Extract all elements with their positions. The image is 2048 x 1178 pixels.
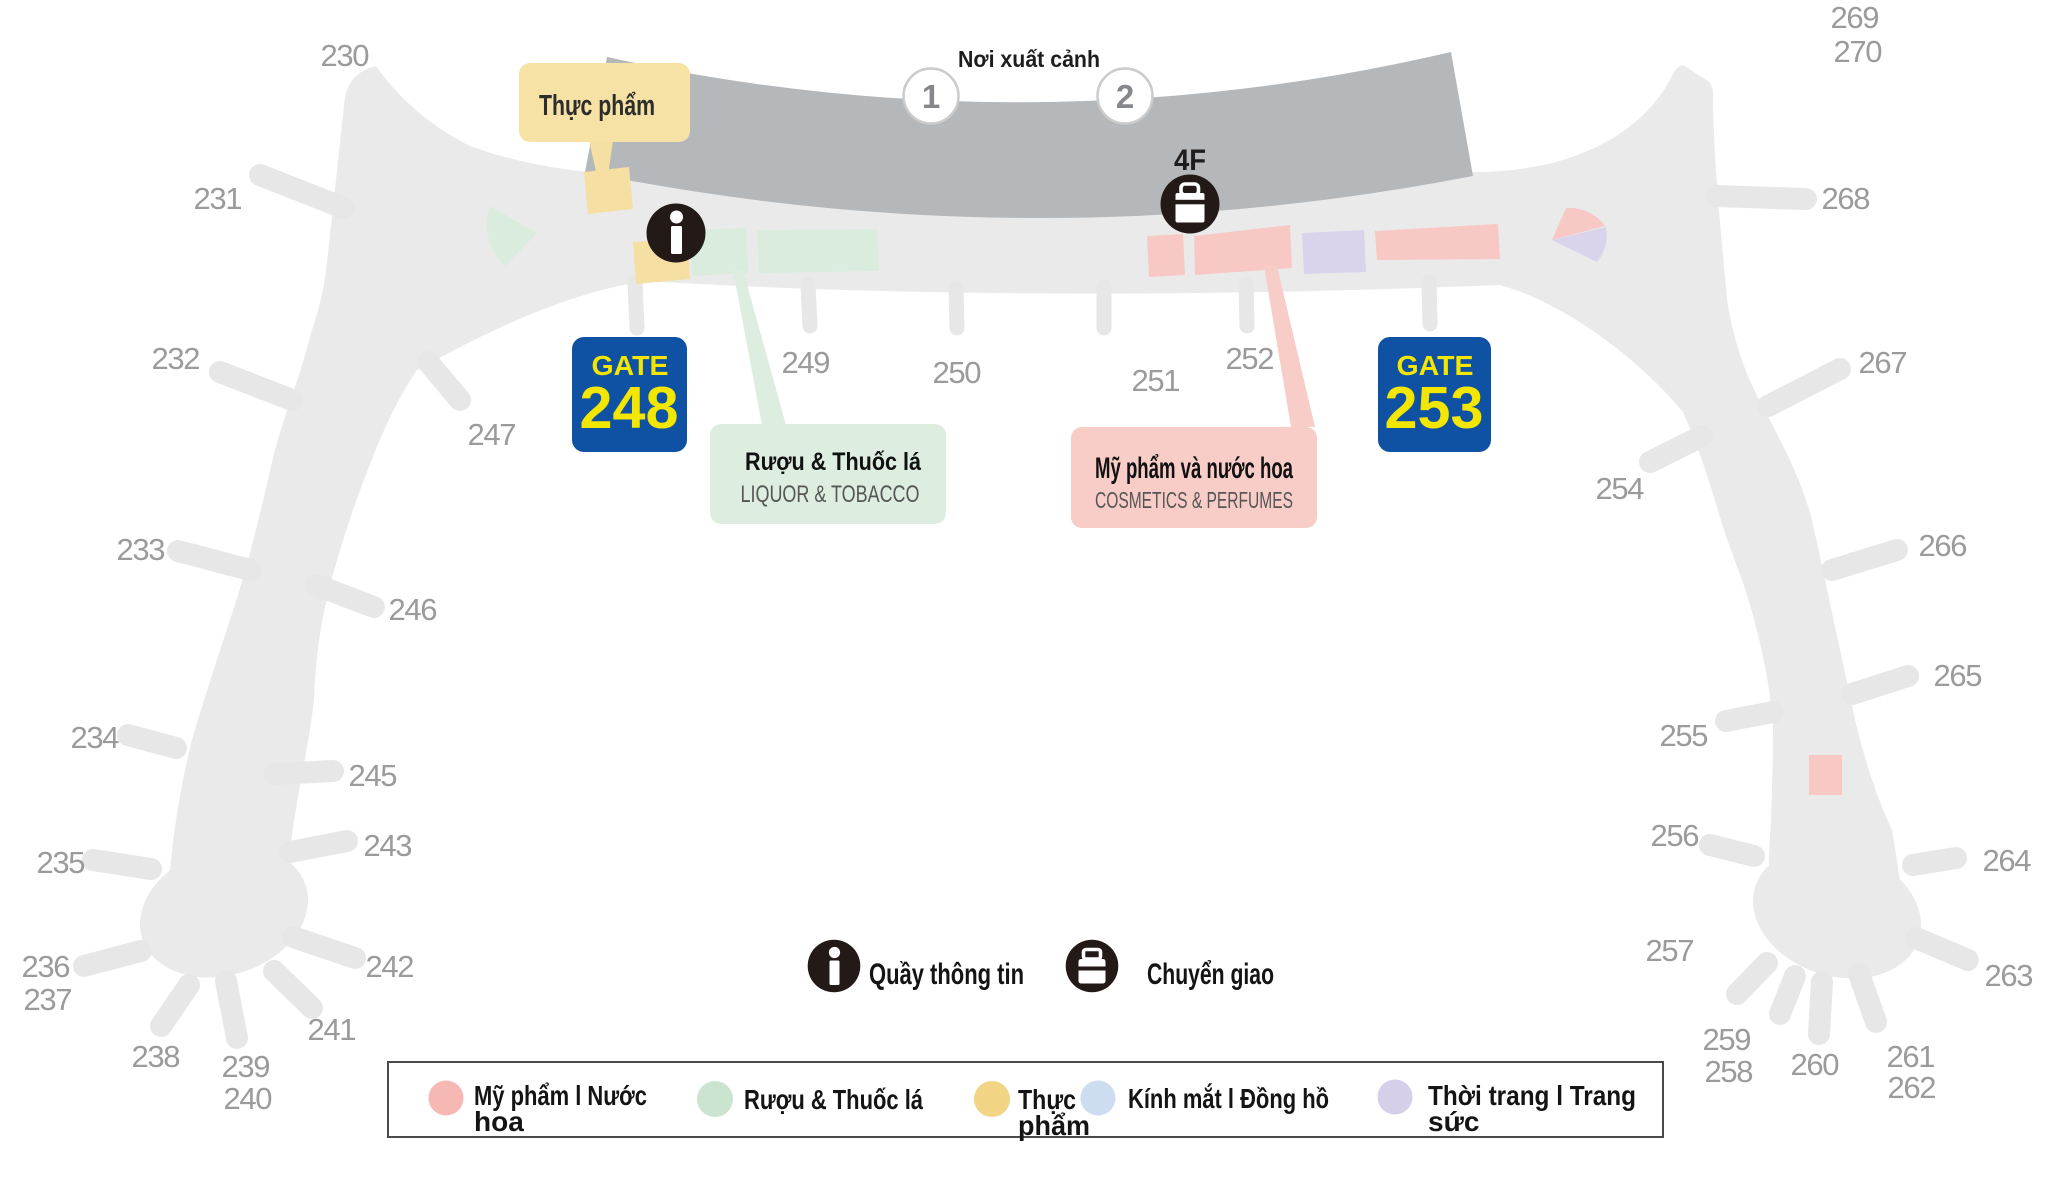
svg-text:236: 236 (22, 949, 71, 984)
svg-text:265: 265 (1934, 658, 1983, 693)
svg-text:230: 230 (321, 38, 370, 73)
svg-text:234: 234 (71, 720, 120, 755)
svg-text:hoa: hoa (474, 1106, 524, 1137)
svg-text:241: 241 (308, 1012, 357, 1047)
svg-text:Kính mắt l Đồng hồ: Kính mắt l Đồng hồ (1128, 1083, 1329, 1114)
svg-text:251: 251 (1132, 363, 1181, 398)
svg-text:264: 264 (1983, 843, 2032, 878)
svg-text:237: 237 (24, 982, 73, 1017)
svg-text:235: 235 (37, 845, 86, 880)
svg-text:Mỹ phẩm và nước hoa: Mỹ phẩm và nước hoa (1095, 452, 1293, 485)
svg-text:269: 269 (1831, 0, 1880, 35)
svg-text:Nơi xuất cảnh: Nơi xuất cảnh (958, 46, 1100, 72)
svg-text:263: 263 (1985, 958, 2034, 993)
svg-text:250: 250 (933, 355, 982, 390)
svg-text:Thực phẩm: Thực phẩm (539, 90, 655, 122)
svg-text:LIQUOR & TOBACCO: LIQUOR & TOBACCO (741, 481, 920, 508)
svg-text:COSMETICS & PERFUMES: COSMETICS & PERFUMES (1095, 487, 1293, 513)
svg-text:268: 268 (1822, 181, 1871, 216)
svg-text:Rượu & Thuốc lá: Rượu & Thuốc lá (745, 448, 921, 476)
svg-text:253: 253 (1385, 375, 1484, 441)
svg-text:239: 239 (222, 1049, 271, 1084)
svg-text:262: 262 (1888, 1070, 1937, 1105)
svg-text:4F: 4F (1174, 144, 1206, 177)
svg-text:232: 232 (152, 341, 201, 376)
svg-text:248: 248 (580, 375, 679, 441)
svg-text:245: 245 (349, 758, 398, 793)
svg-text:256: 256 (1651, 818, 1700, 853)
svg-text:238: 238 (132, 1039, 181, 1074)
svg-text:Quầy thông tin: Quầy thông tin (869, 958, 1024, 991)
svg-text:247: 247 (468, 417, 517, 452)
svg-text:phẩm: phẩm (1018, 1110, 1090, 1141)
svg-text:240: 240 (224, 1081, 273, 1116)
svg-text:243: 243 (364, 828, 413, 863)
svg-text:242: 242 (366, 949, 415, 984)
svg-text:259: 259 (1703, 1022, 1752, 1057)
svg-text:Chuyển giao: Chuyển giao (1147, 958, 1274, 991)
svg-text:260: 260 (1791, 1047, 1840, 1082)
svg-text:1: 1 (922, 78, 940, 115)
svg-text:267: 267 (1859, 345, 1908, 380)
svg-text:231: 231 (194, 181, 243, 216)
svg-text:254: 254 (1596, 471, 1645, 506)
svg-text:261: 261 (1887, 1039, 1936, 1074)
svg-text:246: 246 (389, 592, 438, 627)
svg-text:257: 257 (1646, 933, 1695, 968)
svg-text:270: 270 (1834, 34, 1883, 69)
svg-text:2: 2 (1116, 78, 1134, 115)
svg-text:266: 266 (1919, 528, 1968, 563)
svg-text:233: 233 (117, 532, 166, 567)
svg-text:249: 249 (782, 345, 831, 380)
svg-text:258: 258 (1705, 1054, 1754, 1089)
svg-text:sức: sức (1428, 1106, 1479, 1137)
svg-text:Rượu & Thuốc lá: Rượu & Thuốc lá (744, 1084, 923, 1115)
svg-text:252: 252 (1226, 341, 1275, 376)
svg-text:255: 255 (1660, 718, 1709, 753)
